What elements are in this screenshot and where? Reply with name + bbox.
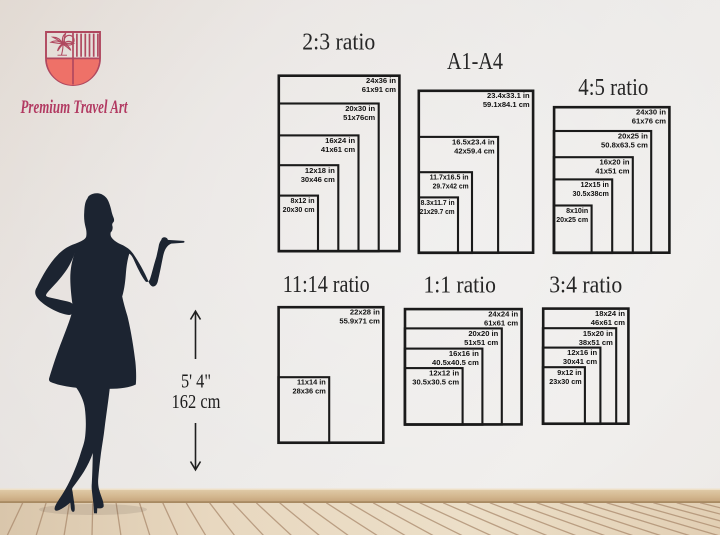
svg-text:23.4x33.1 in: 23.4x33.1 in xyxy=(487,91,530,100)
svg-text:9x12 in: 9x12 in xyxy=(557,368,581,377)
svg-text:22x28 in: 22x28 in xyxy=(350,308,380,317)
svg-text:61x91 cm: 61x91 cm xyxy=(362,85,396,94)
svg-text:24x30 in: 24x30 in xyxy=(636,108,666,117)
svg-text:2:3 ratio: 2:3 ratio xyxy=(302,30,375,56)
svg-text:5' 4": 5' 4" xyxy=(181,371,211,393)
svg-text:11:14 ratio: 11:14 ratio xyxy=(283,272,370,298)
svg-text:4:5 ratio: 4:5 ratio xyxy=(578,75,648,101)
svg-text:30x41 cm: 30x41 cm xyxy=(563,357,597,366)
svg-text:11x14 in: 11x14 in xyxy=(297,378,326,387)
svg-text:61x61 cm: 61x61 cm xyxy=(484,318,518,327)
svg-text:42x59.4 cm: 42x59.4 cm xyxy=(454,146,495,155)
svg-text:30x46 cm: 30x46 cm xyxy=(301,175,335,184)
svg-text:23x30 cm: 23x30 cm xyxy=(549,377,581,386)
svg-text:20x30 cm: 20x30 cm xyxy=(283,206,315,214)
svg-text:20x25 cm: 20x25 cm xyxy=(556,216,588,224)
svg-text:20x25 in: 20x25 in xyxy=(618,132,648,141)
svg-text:46x61 cm: 46x61 cm xyxy=(591,318,625,327)
svg-text:16x16 in: 16x16 in xyxy=(449,349,479,358)
svg-text:20x20 in: 20x20 in xyxy=(468,329,498,338)
svg-text:28x36 cm: 28x36 cm xyxy=(293,387,327,396)
svg-text:12x16 in: 12x16 in xyxy=(567,348,597,357)
svg-text:8.3x11.7 in: 8.3x11.7 in xyxy=(421,200,455,207)
svg-text:12x12 in: 12x12 in xyxy=(429,369,459,378)
svg-text:38x51 cm: 38x51 cm xyxy=(579,338,613,347)
svg-text:41x61 cm: 41x61 cm xyxy=(321,145,355,154)
svg-text:12x15 in: 12x15 in xyxy=(581,180,609,189)
svg-text:24x36 in: 24x36 in xyxy=(366,76,396,85)
svg-text:20x30 in: 20x30 in xyxy=(345,104,375,113)
svg-text:16.5x23.4 in: 16.5x23.4 in xyxy=(452,137,495,146)
svg-text:40.5x40.5 cm: 40.5x40.5 cm xyxy=(432,358,479,367)
svg-text:A1-A4: A1-A4 xyxy=(447,49,503,75)
svg-text:50.8x63.5 cm: 50.8x63.5 cm xyxy=(601,141,648,150)
svg-text:30.5x30.5 cm: 30.5x30.5 cm xyxy=(412,378,459,387)
svg-text:59.1x84.1 cm: 59.1x84.1 cm xyxy=(483,100,530,109)
svg-text:24x24 in: 24x24 in xyxy=(488,309,518,318)
svg-text:3:4 ratio: 3:4 ratio xyxy=(549,273,622,299)
svg-text:12x18 in: 12x18 in xyxy=(305,166,335,175)
svg-text:18x24 in: 18x24 in xyxy=(595,309,625,318)
svg-text:21x29.7 cm: 21x29.7 cm xyxy=(420,209,455,216)
svg-text:30.5x38cm: 30.5x38cm xyxy=(573,189,609,198)
svg-text:8x12 in: 8x12 in xyxy=(291,197,315,205)
svg-text:15x20 in: 15x20 in xyxy=(583,329,613,338)
svg-text:16x20 in: 16x20 in xyxy=(600,158,630,167)
svg-text:55.9x71 cm: 55.9x71 cm xyxy=(339,317,380,326)
svg-text:162 cm: 162 cm xyxy=(172,391,221,413)
svg-text:61x76 cm: 61x76 cm xyxy=(632,117,666,126)
svg-text:41x51 cm: 41x51 cm xyxy=(595,167,629,176)
svg-text:Premium Travel Art: Premium Travel Art xyxy=(20,97,128,118)
svg-text:51x76cm: 51x76cm xyxy=(343,113,375,122)
svg-text:11.7x16.5 in: 11.7x16.5 in xyxy=(430,173,469,182)
svg-text:16x24 in: 16x24 in xyxy=(325,136,355,145)
svg-text:29.7x42 cm: 29.7x42 cm xyxy=(433,182,469,191)
svg-text:1:1 ratio: 1:1 ratio xyxy=(423,273,496,299)
svg-text:51x51 cm: 51x51 cm xyxy=(464,338,498,347)
svg-text:8x10in: 8x10in xyxy=(566,207,588,215)
